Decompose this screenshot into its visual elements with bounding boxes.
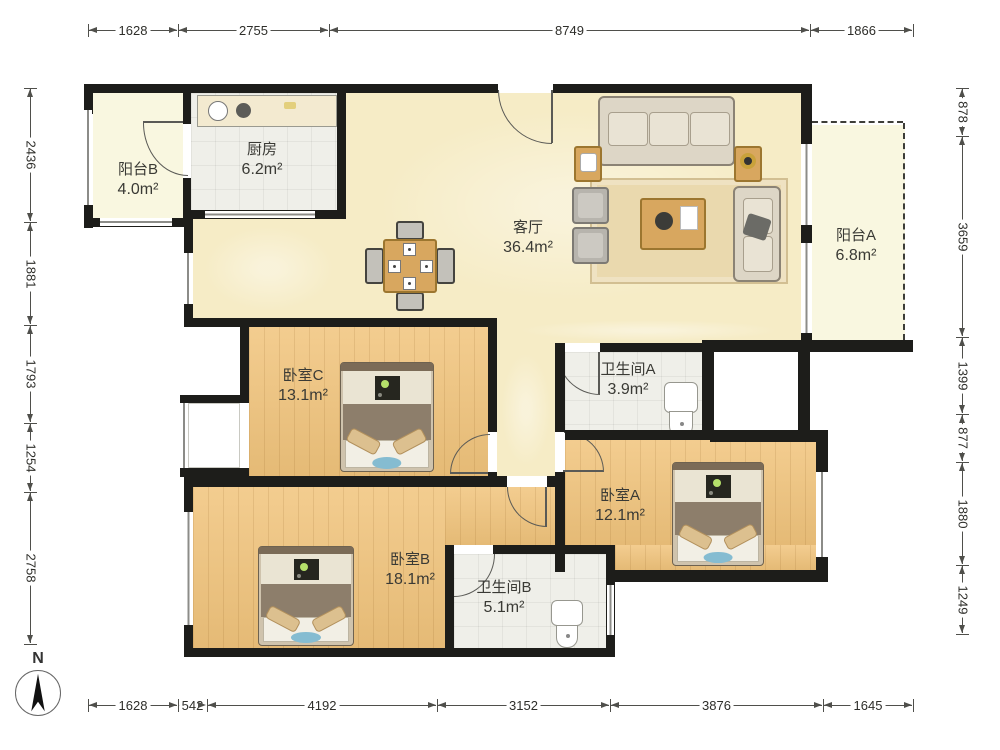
- dim-segment-top: 1628: [89, 30, 177, 31]
- north-arrow: N: [12, 650, 64, 728]
- dim-label: 3659: [956, 219, 971, 254]
- wall-segment: [240, 318, 249, 403]
- wall-segment: [488, 318, 497, 432]
- sofa-main: [598, 96, 735, 166]
- bed-bedroom-b: [258, 546, 354, 646]
- wall-segment: [801, 84, 812, 144]
- bowl-icon: [740, 153, 756, 169]
- room-name: 卫生间B: [456, 578, 552, 598]
- label-balcony-b: 阳台B 4.0m²: [98, 160, 178, 200]
- dim-tick: [913, 699, 914, 712]
- soap-tray-icon: [284, 102, 296, 109]
- dim-label: 4192: [305, 698, 340, 713]
- window: [818, 472, 826, 557]
- dim-label: 1399: [956, 358, 971, 393]
- wall-segment: [183, 84, 191, 124]
- dim-label: 2758: [24, 551, 39, 586]
- dim-label: 1249: [956, 582, 971, 617]
- dim-segment-bottom: 4192: [208, 705, 436, 706]
- wall-segment: [801, 333, 812, 352]
- dim-label: 3152: [506, 698, 541, 713]
- wall-segment: [816, 442, 828, 472]
- dim-label: 3876: [699, 698, 734, 713]
- wall-segment: [702, 343, 714, 440]
- bed-part: [291, 632, 321, 643]
- bed-bedroom-a: [672, 462, 764, 566]
- bed-part: [341, 363, 433, 371]
- dim-segment-left: 2436: [30, 89, 31, 221]
- dim-segment-left: 1254: [30, 424, 31, 491]
- label-bedroom-c: 卧室C 13.1m²: [260, 366, 346, 406]
- place-setting: [388, 260, 401, 273]
- room-name: 卫生间A: [578, 360, 678, 380]
- room-area: 6.2m²: [222, 160, 302, 181]
- room-dining-arm: [193, 219, 345, 318]
- sink-icon: [208, 101, 228, 121]
- sofa-side: [733, 186, 781, 282]
- room-name: 客厅: [478, 218, 578, 238]
- wall-segment: [600, 343, 710, 352]
- window: [802, 144, 811, 225]
- window: [84, 110, 92, 205]
- compass-needle-icon: [25, 673, 51, 713]
- label-bedroom-b: 卧室B 18.1m²: [365, 550, 455, 590]
- dim-label: 1880: [956, 496, 971, 531]
- dim-label: 1793: [24, 357, 39, 392]
- dim-label: 1645: [851, 698, 886, 713]
- place-setting: [403, 277, 416, 290]
- room-name: 卧室B: [365, 550, 455, 570]
- room-area: 4.0m²: [98, 180, 178, 201]
- room-name: 卧室A: [575, 486, 665, 506]
- dim-label: 1628: [116, 698, 151, 713]
- compass-circle: [15, 670, 61, 716]
- bed-part: [372, 457, 401, 469]
- wall-segment: [345, 84, 498, 93]
- room-name: 厨房: [222, 140, 302, 160]
- window: [184, 253, 192, 304]
- room-name: 阳台A: [815, 226, 897, 246]
- toilet-part: [556, 625, 578, 648]
- window: [607, 585, 614, 635]
- wall-segment: [493, 545, 615, 554]
- dim-segment-bottom: 1628: [89, 705, 177, 706]
- wall-segment: [565, 430, 710, 440]
- dim-label: 1254: [24, 440, 39, 475]
- dim-segment-bottom: 1645: [824, 705, 912, 706]
- wall-segment: [184, 648, 615, 657]
- window: [802, 243, 811, 333]
- wall-segment: [553, 84, 812, 93]
- tray-icon: [680, 206, 698, 230]
- north-label: N: [12, 650, 64, 668]
- room-corridor: [497, 343, 555, 476]
- dim-segment-right: 877: [962, 415, 963, 461]
- dim-segment-left: 1881: [30, 223, 31, 324]
- window: [205, 211, 315, 218]
- dim-label: 542: [179, 698, 207, 713]
- dim-segment-top: 1866: [811, 30, 912, 31]
- room-area: 6.8m²: [815, 246, 897, 267]
- room-area: 3.9m²: [578, 380, 678, 401]
- dim-segment-right: 3659: [962, 137, 963, 336]
- dim-segment-bottom: 3152: [438, 705, 609, 706]
- dim-segment-left: 1793: [30, 326, 31, 422]
- bed-cushion-panel: [294, 559, 319, 581]
- dim-segment-right: 1880: [962, 463, 963, 564]
- room-area: 36.4m²: [478, 238, 578, 259]
- bay-window-sill: [188, 403, 240, 468]
- wall-segment: [555, 352, 565, 432]
- label-living: 客厅 36.4m²: [478, 218, 578, 258]
- room-area: 13.1m²: [260, 386, 346, 407]
- dim-label: 1881: [24, 256, 39, 291]
- bed-part: [704, 552, 733, 563]
- balcony-a-dashed-top: [812, 121, 903, 123]
- dim-segment-bottom: 542: [179, 705, 206, 706]
- dim-label: 8749: [552, 23, 587, 38]
- wall-segment: [615, 570, 828, 582]
- wall-segment: [84, 84, 345, 93]
- window: [100, 218, 172, 226]
- window: [185, 512, 192, 625]
- dim-label: 877: [956, 424, 971, 452]
- balcony-a-dashed-right: [903, 123, 905, 340]
- wall-segment: [801, 225, 812, 243]
- dim-segment-right: 1399: [962, 338, 963, 413]
- bed-part: [259, 547, 353, 554]
- label-bathroom-b: 卫生间B 5.1m²: [456, 578, 552, 618]
- dining-chair: [365, 248, 384, 284]
- teapot-icon: [655, 212, 673, 230]
- wall-segment: [184, 219, 193, 253]
- bed-cushion-panel: [375, 376, 400, 400]
- room-area: 12.1m²: [575, 506, 665, 527]
- bed-bedroom-c: [340, 362, 434, 472]
- label-bathroom-a: 卫生间A 3.9m²: [578, 360, 678, 400]
- dim-label: 1628: [116, 23, 151, 38]
- window: [180, 403, 188, 468]
- toilet-bathroom-b: [551, 600, 583, 648]
- bed-part: [673, 463, 763, 470]
- room-area: 18.1m²: [365, 570, 455, 591]
- wall-segment: [184, 476, 507, 487]
- dining-chair: [436, 248, 455, 284]
- dim-segment-left: 2758: [30, 493, 31, 643]
- dim-label: 2436: [24, 138, 39, 173]
- place-setting: [420, 260, 433, 273]
- room-name: 卧室C: [260, 366, 346, 386]
- wall-segment: [555, 472, 565, 572]
- wall-segment: [184, 487, 193, 512]
- bed-cushion-panel: [706, 475, 730, 497]
- dim-label: 878: [956, 98, 971, 126]
- pot-icon: [236, 103, 251, 118]
- dining-chair: [396, 221, 424, 240]
- dim-segment-right: 1249: [962, 566, 963, 633]
- wall-segment: [180, 395, 248, 403]
- toilet-part: [551, 600, 583, 626]
- wall-segment: [337, 84, 346, 219]
- label-bedroom-a: 卧室A 12.1m²: [575, 486, 665, 526]
- label-balcony-a: 阳台A 6.8m²: [815, 226, 897, 266]
- floor-plan: 阳台B 4.0m² 厨房 6.2m² 客厅 36.4m² 阳台A 6.8m² 卧…: [0, 0, 1000, 750]
- dining-chair: [396, 292, 424, 311]
- dim-tick: [956, 634, 969, 635]
- wall-segment: [245, 318, 497, 327]
- dim-label: 1866: [844, 23, 879, 38]
- dim-segment-top: 8749: [330, 30, 809, 31]
- dim-tick: [24, 644, 37, 645]
- wall-segment: [710, 430, 828, 442]
- place-setting: [403, 243, 416, 256]
- dim-tick: [913, 24, 914, 37]
- wall-segment: [555, 343, 565, 352]
- dim-segment-right: 878: [962, 89, 963, 135]
- label-kitchen: 厨房 6.2m²: [222, 140, 302, 180]
- room-area: 5.1m²: [456, 598, 552, 619]
- dim-segment-bottom: 3876: [611, 705, 822, 706]
- kettle-icon: [580, 153, 597, 172]
- dim-segment-top: 2755: [179, 30, 328, 31]
- wall-segment: [798, 352, 810, 430]
- dim-label: 2755: [236, 23, 271, 38]
- room-name: 阳台B: [98, 160, 178, 180]
